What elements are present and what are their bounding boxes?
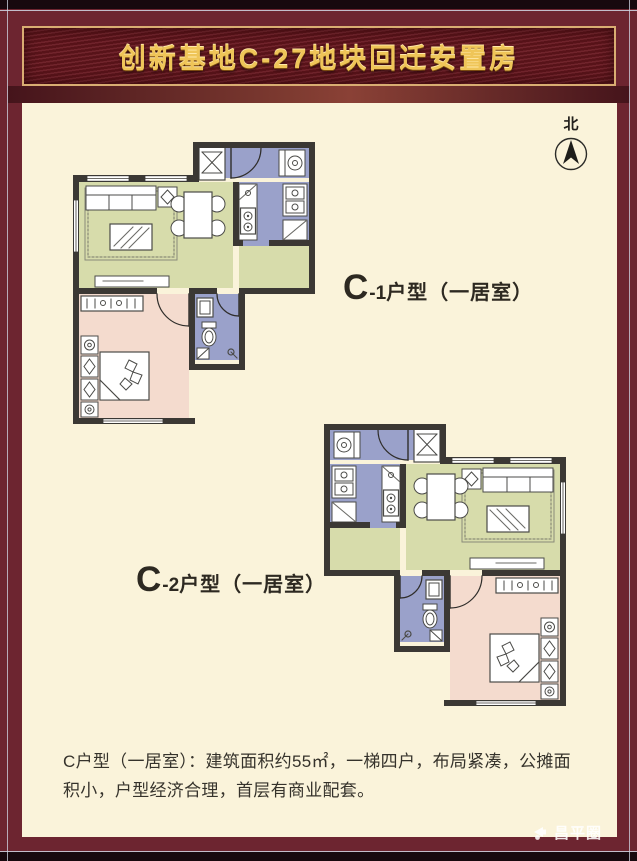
north-indicator: 北 [548, 116, 594, 179]
plan-label-c1-text: 户型（一居室） [386, 276, 533, 305]
floor-plan-c2 [320, 424, 566, 712]
plan-label-c2: C -2 户型（一居室） [136, 562, 326, 597]
watermark-text: 昌平圈 [554, 822, 602, 843]
watermark: 昌平圈 [532, 822, 602, 843]
north-label: 北 [548, 116, 594, 134]
frame-top-band [0, 0, 637, 9]
description-text: C户型（一居室）：建筑面积约55㎡，一梯四户，布局紧凑，公摊面积小，户型经济合理… [63, 747, 587, 805]
poster: 创新基地C-27地块回迁安置房 北 [0, 0, 637, 861]
plan-label-c1-letter: C [343, 270, 368, 305]
page-title: 创新基地C-27地块回迁安置房 [119, 37, 520, 76]
plan-label-c2-text: 户型（一居室） [179, 568, 326, 597]
plan-label-c1: C -1 户型（一居室） [343, 270, 533, 305]
title-banner: 创新基地C-27地块回迁安置房 [22, 26, 616, 86]
banner-shadow-strip [8, 86, 630, 103]
frame-hairline-bottom [0, 851, 637, 852]
frame-hairline-top [0, 10, 637, 11]
megaphone-icon [532, 824, 550, 842]
floor-plan-c1 [73, 142, 319, 430]
plan-label-c1-number: -1 [369, 283, 386, 305]
north-arrow-icon [551, 134, 591, 174]
plan-label-c2-number: -2 [162, 575, 179, 597]
frame-hairline-right [629, 0, 630, 861]
frame-hairline-left [7, 0, 8, 861]
plan-label-c2-letter: C [136, 562, 161, 597]
frame-bottom-band [0, 852, 637, 861]
